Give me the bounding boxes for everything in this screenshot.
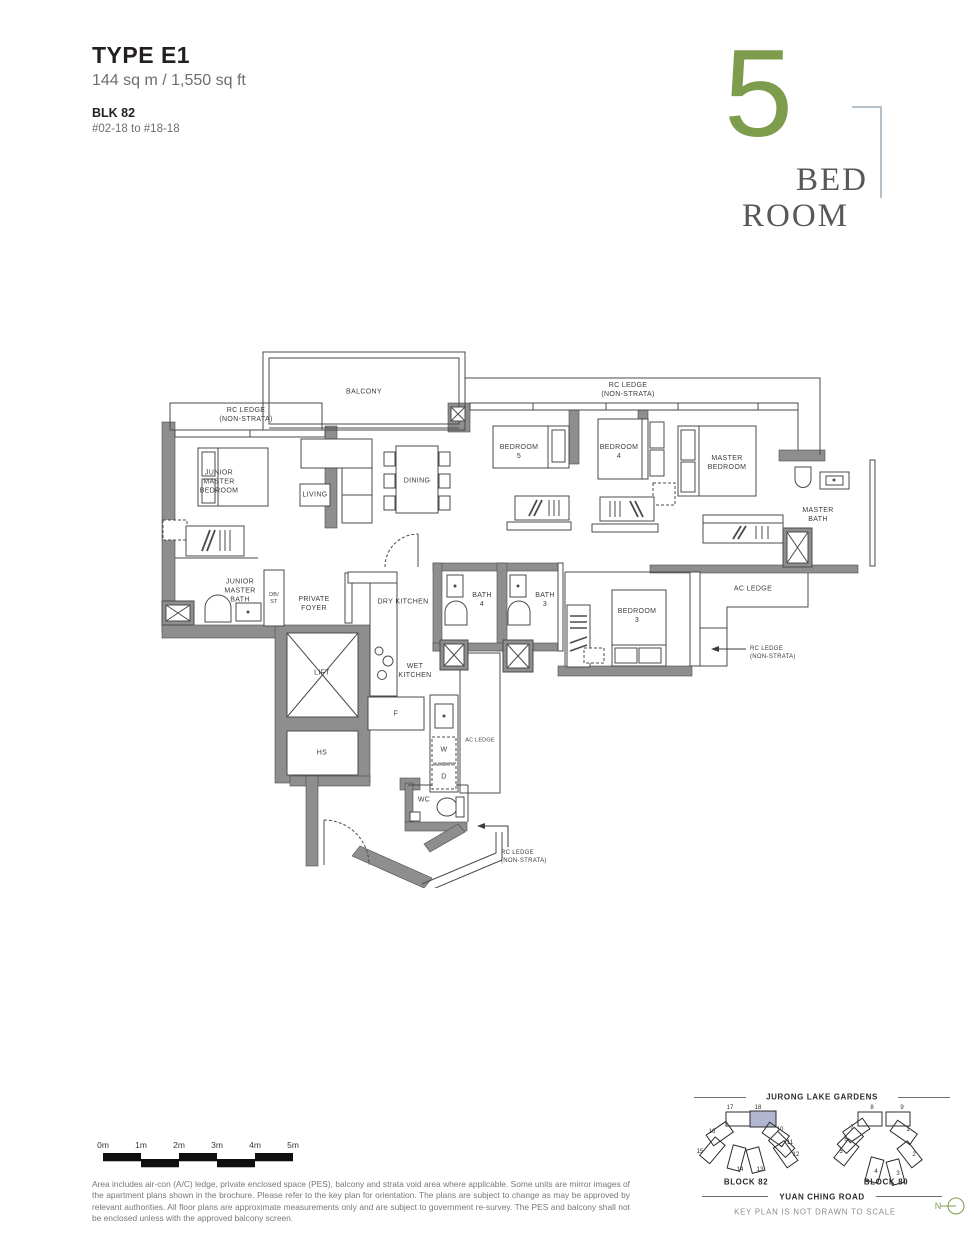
label-dry-kitchen: DRY KITCHEN: [377, 597, 428, 606]
dashed-box-icon: [584, 648, 604, 663]
scale-label: 1m: [135, 1140, 147, 1150]
label-rc-ledge-top-left: RC LEDGE (NON-STRATA): [219, 406, 272, 424]
label-wet-kitchen: WET KITCHEN: [398, 662, 431, 680]
logo-word-room: ROOM: [742, 198, 849, 235]
label-bath-3: BATH 3: [535, 591, 555, 609]
label-rc-ledge-mid-right: RC LEDGE (NON-STRATA): [750, 646, 796, 662]
label-balcony: BALCONY: [346, 387, 382, 396]
scale-label: 3m: [211, 1140, 223, 1150]
label-master-bath: MASTER BATH: [802, 506, 833, 524]
unit-number: 17: [727, 1105, 734, 1111]
unit-number: 2: [912, 1152, 915, 1158]
brochure-page: TYPE E1 144 sq m / 1,550 sq ft BLK 82 #0…: [0, 0, 974, 1240]
north-compass-icon: [940, 1198, 964, 1214]
scale-segment: [217, 1159, 255, 1167]
ac-box-bath3: [503, 640, 533, 672]
block-80-label: BLOCK 80: [864, 1178, 908, 1187]
label-rc-ledge-bottom: RC LEDGE (NON-STRATA): [501, 850, 547, 866]
disclaimer-text: Area includes air-con (A/C) ledge, priva…: [92, 1179, 630, 1224]
block-number: BLK 82: [92, 106, 246, 120]
bedroom-count-logo: 5 BED ROOM: [710, 40, 945, 210]
logo-word-bed: BED: [796, 162, 868, 199]
label-rc-ledge-top-right: RC LEDGE (NON-STRATA): [601, 381, 654, 399]
highlighted-unit-18: [750, 1111, 776, 1127]
label-hs: HS: [317, 748, 327, 757]
scale-segment: [141, 1159, 179, 1167]
scale-segment: [103, 1153, 141, 1161]
keyplan-note: KEY PLAN IS NOT DRAWN TO SCALE: [734, 1208, 896, 1217]
unit-number: 5: [839, 1149, 842, 1155]
label-bath-4: BATH 4: [472, 591, 492, 609]
label-bedroom-5: BEDROOM 5: [500, 443, 539, 461]
key-plan: JURONG LAKE GARDENS: [690, 1086, 974, 1236]
label-washer: W: [441, 745, 448, 754]
label-junior-master-bedroom: JUNIOR MASTER BEDROOM: [200, 468, 239, 495]
label-wc: WC: [418, 795, 430, 804]
north-label: N: [935, 1201, 942, 1211]
logo-bracket-horizontal: [852, 106, 880, 108]
keyplan-bottom-road: YUAN CHING ROAD: [779, 1193, 864, 1202]
unit-number: 13: [757, 1167, 764, 1173]
label-dining: DINING: [404, 476, 431, 485]
label-ac-ledge-bottom: AC LEDGE: [465, 737, 494, 744]
label-bedroom-4: BEDROOM 4: [600, 443, 639, 461]
unit-number: 8: [870, 1105, 873, 1111]
block-82-label: BLOCK 82: [724, 1178, 768, 1187]
unit-number: 15: [697, 1149, 704, 1155]
unit-number: 4: [874, 1169, 877, 1175]
bedroom3-bed-icon: [612, 590, 666, 666]
unit-number: 16: [709, 1129, 716, 1135]
bedroom4-wardrobe-icon: [592, 497, 658, 532]
bath3-fixtures: [508, 575, 530, 625]
label-dryer: D: [441, 772, 446, 781]
dashed-box-icon: [163, 520, 187, 540]
unit-number: 12: [793, 1152, 800, 1158]
unit-number: 1: [906, 1127, 909, 1133]
scale-bar: 0m 1m 2m 3m 4m 5m: [95, 1140, 305, 1168]
bath4-fixtures: [445, 575, 467, 625]
label-bedroom-3: BEDROOM 3: [618, 607, 657, 625]
label-lift: LIFT: [314, 668, 330, 677]
block-80-outline: [834, 1112, 922, 1185]
unit-number: 3: [896, 1171, 899, 1177]
label-master-bedroom: MASTER BEDROOM: [708, 454, 747, 472]
scale-label: 5m: [287, 1140, 299, 1150]
ac-box-junior-bath: [162, 601, 194, 625]
unit-number: 18: [755, 1105, 762, 1111]
label-junior-master-bath: JUNIOR MASTER BATH: [224, 577, 255, 604]
unit-header: TYPE E1 144 sq m / 1,550 sq ft BLK 82 #0…: [92, 42, 246, 135]
ac-box-balcony: [451, 407, 465, 421]
master-wardrobe-icon: [703, 515, 783, 543]
unit-type-title: TYPE E1: [92, 42, 246, 69]
scale-segment: [179, 1153, 217, 1161]
scale-label: 4m: [249, 1140, 261, 1150]
scale-label: 0m: [97, 1140, 109, 1150]
ac-box-bath4: [440, 640, 468, 670]
logo-bracket-vertical: [880, 106, 882, 198]
logo-number: 5: [724, 32, 793, 156]
label-ac-ledge-right: AC LEDGE: [734, 584, 772, 593]
label-fridge: F: [394, 709, 399, 718]
master-bath-fixtures: [795, 467, 849, 489]
label-db-st: DB/ ST: [269, 592, 279, 606]
unit-number: 9: [900, 1105, 903, 1111]
keyplan-divider: [876, 1196, 942, 1197]
ac-box-master: [783, 528, 812, 567]
unit-range: #02-18 to #18-18: [92, 123, 246, 135]
scale-segment: [255, 1153, 293, 1161]
scale-label: 2m: [173, 1140, 185, 1150]
label-private-foyer: PRIVATE FOYER: [298, 595, 329, 613]
unit-number: 10: [777, 1127, 784, 1133]
dashed-box-icon: [653, 483, 675, 505]
block-82-outline: [700, 1111, 798, 1173]
keyplan-divider: [702, 1196, 768, 1197]
floor-plan: BALCONY RC LEDGE (NON-STRATA) RC LEDGE (…: [158, 348, 882, 888]
unit-number: 11: [787, 1140, 793, 1146]
label-living: LIVING: [302, 490, 327, 499]
unit-number: 6: [844, 1137, 847, 1143]
bedroom5-wardrobe-icon: [507, 496, 571, 530]
floor-plan-drawing: [158, 348, 882, 888]
unit-number: 7: [850, 1125, 853, 1131]
unit-number: 14: [737, 1167, 744, 1173]
junior-master-wardrobe-icon: [186, 526, 244, 556]
unit-area: 144 sq m / 1,550 sq ft: [92, 72, 246, 90]
